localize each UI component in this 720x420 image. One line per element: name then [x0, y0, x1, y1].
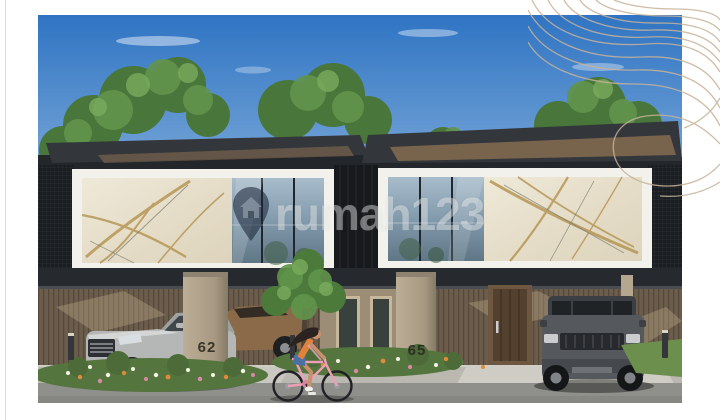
page: { "page": { "background": "#ffffff", "le… [0, 0, 720, 420]
front-door [488, 285, 532, 365]
center-gap [334, 165, 378, 272]
left-margin-rule [5, 0, 6, 420]
contour-swirl-ornament [528, 0, 720, 205]
carport-pillar-62 [183, 272, 228, 370]
